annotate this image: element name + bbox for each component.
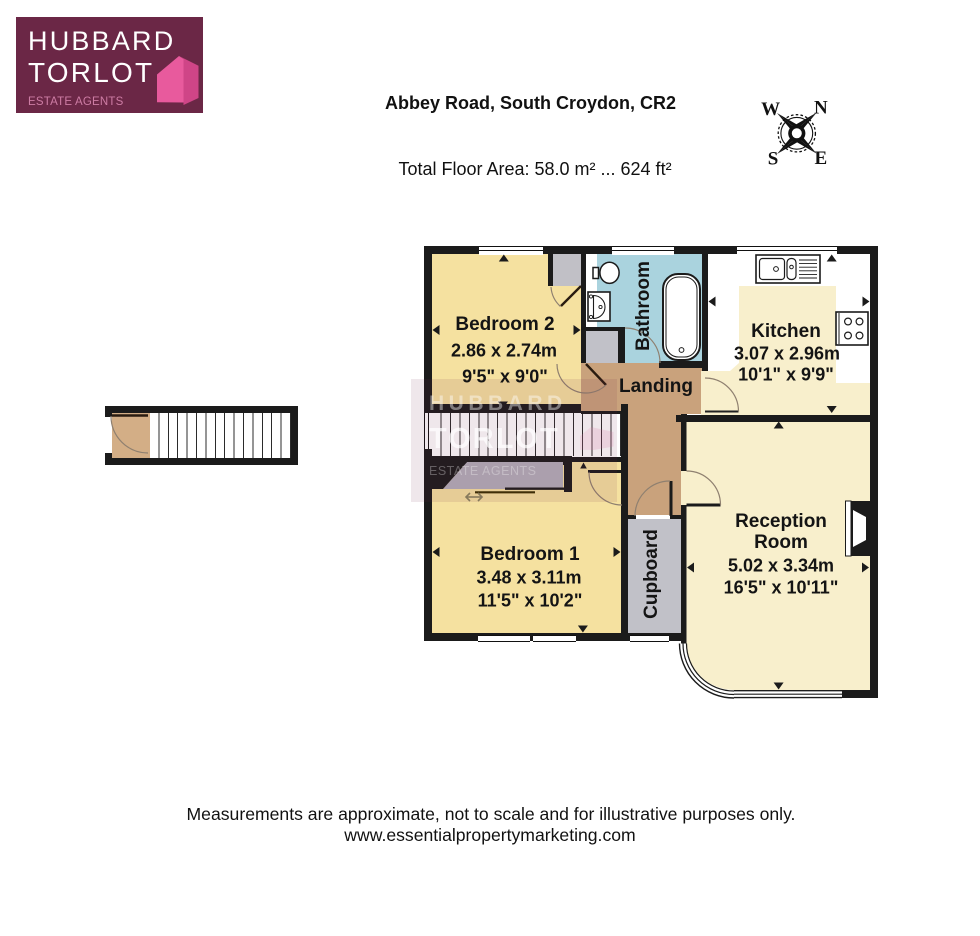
svg-text:N: N <box>814 97 828 118</box>
svg-text:S: S <box>768 149 779 170</box>
svg-text:E: E <box>815 148 828 169</box>
svg-text:W: W <box>761 99 780 120</box>
